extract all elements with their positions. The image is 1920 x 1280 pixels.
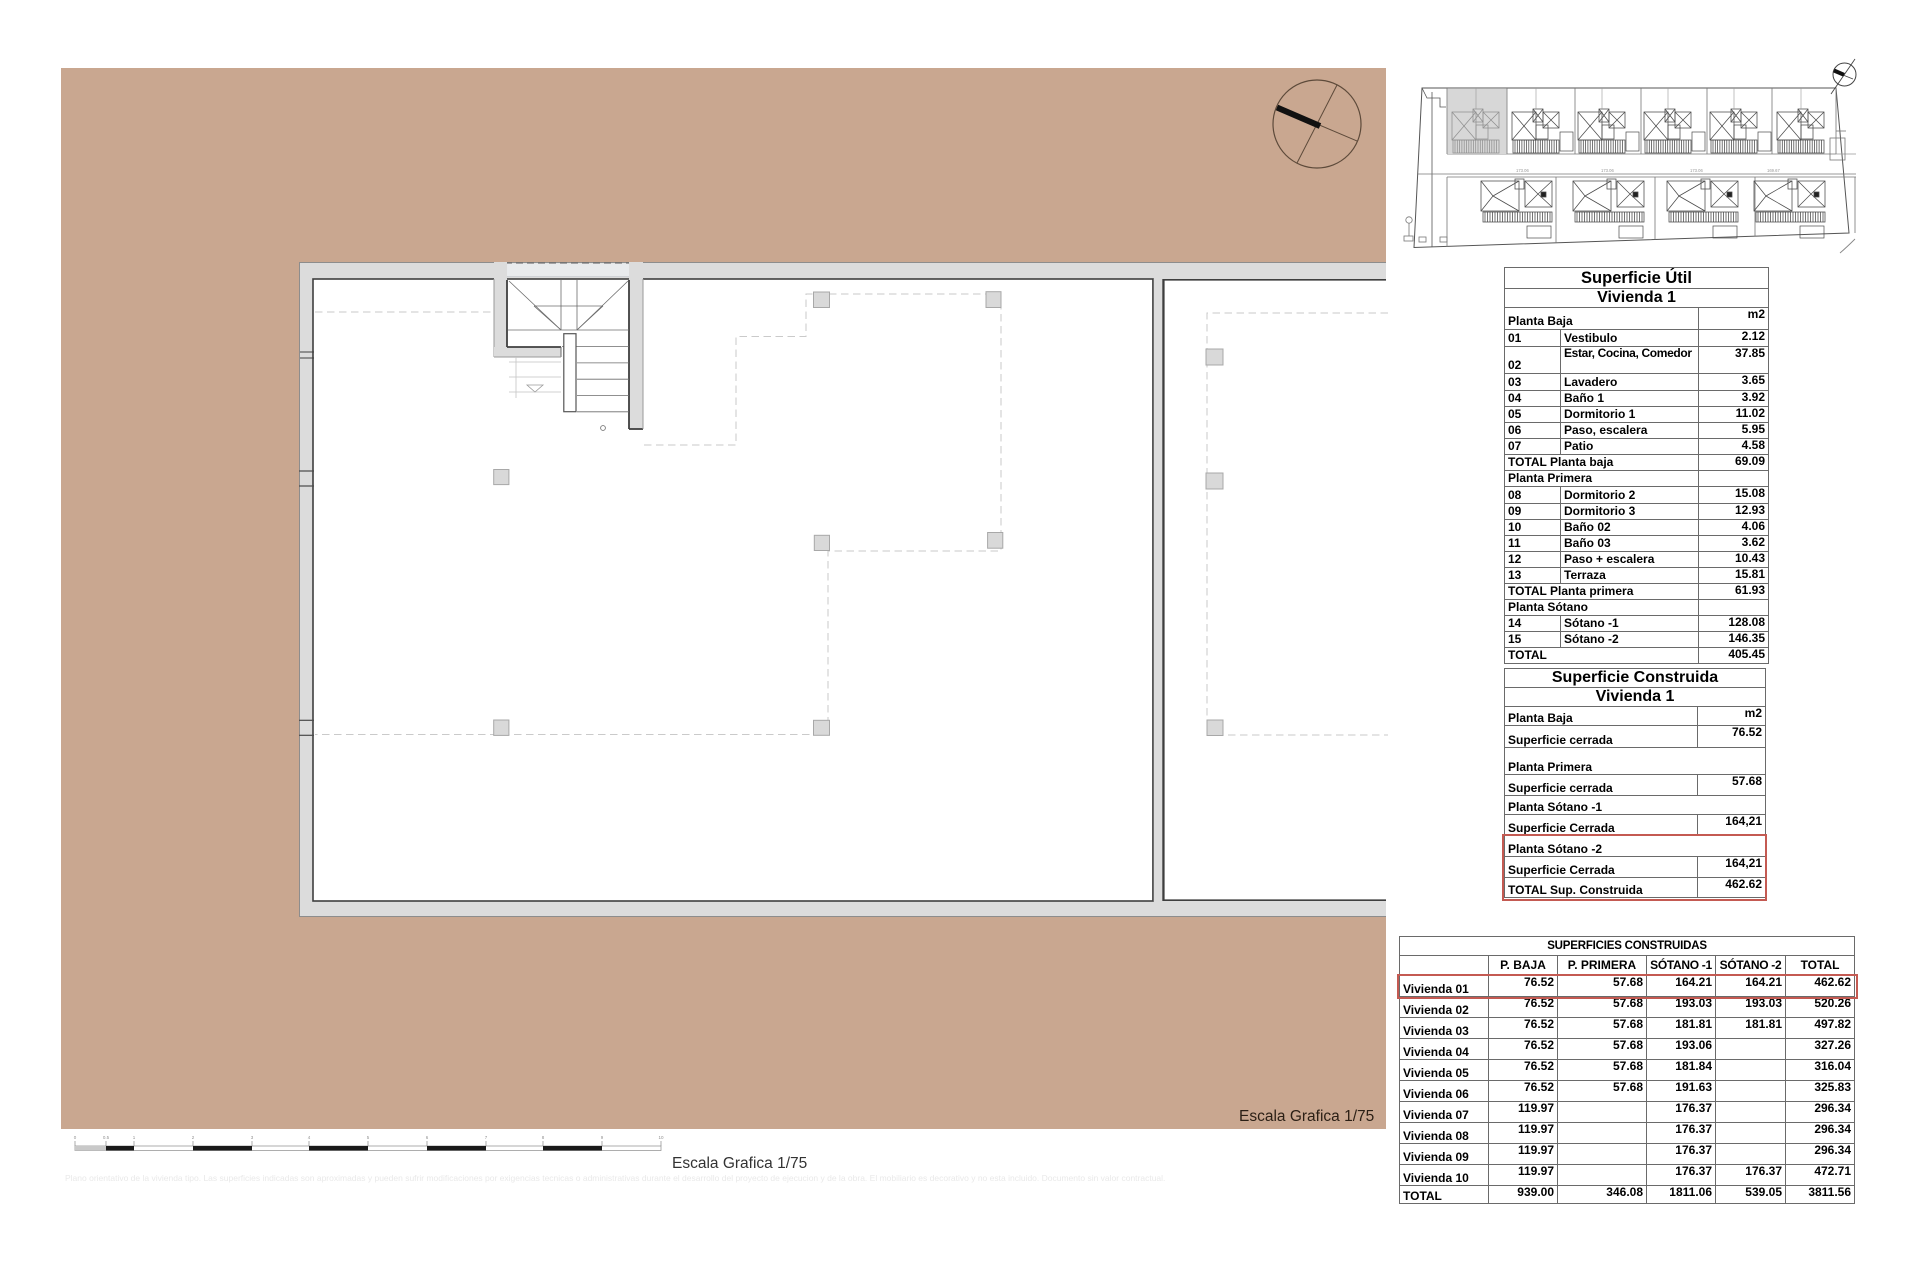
svg-text:7: 7 [485,1135,488,1140]
svg-text:6: 6 [426,1135,429,1140]
svg-text:3: 3 [251,1135,254,1140]
svg-text:0: 0 [74,1135,77,1140]
svg-text:169.67: 169.67 [1767,168,1780,173]
svg-text:173.06: 173.06 [1601,168,1614,173]
svg-text:4: 4 [308,1135,311,1140]
svg-text:5: 5 [367,1135,370,1140]
svg-text:8: 8 [542,1135,545,1140]
svg-text:9: 9 [601,1135,604,1140]
svg-text:0.5: 0.5 [103,1135,110,1140]
svg-text:173.06: 173.06 [1516,168,1529,173]
svg-text:173.06: 173.06 [1690,168,1703,173]
svg-text:2: 2 [192,1135,195,1140]
svg-text:1: 1 [133,1135,136,1140]
svg-text:10: 10 [658,1135,664,1140]
